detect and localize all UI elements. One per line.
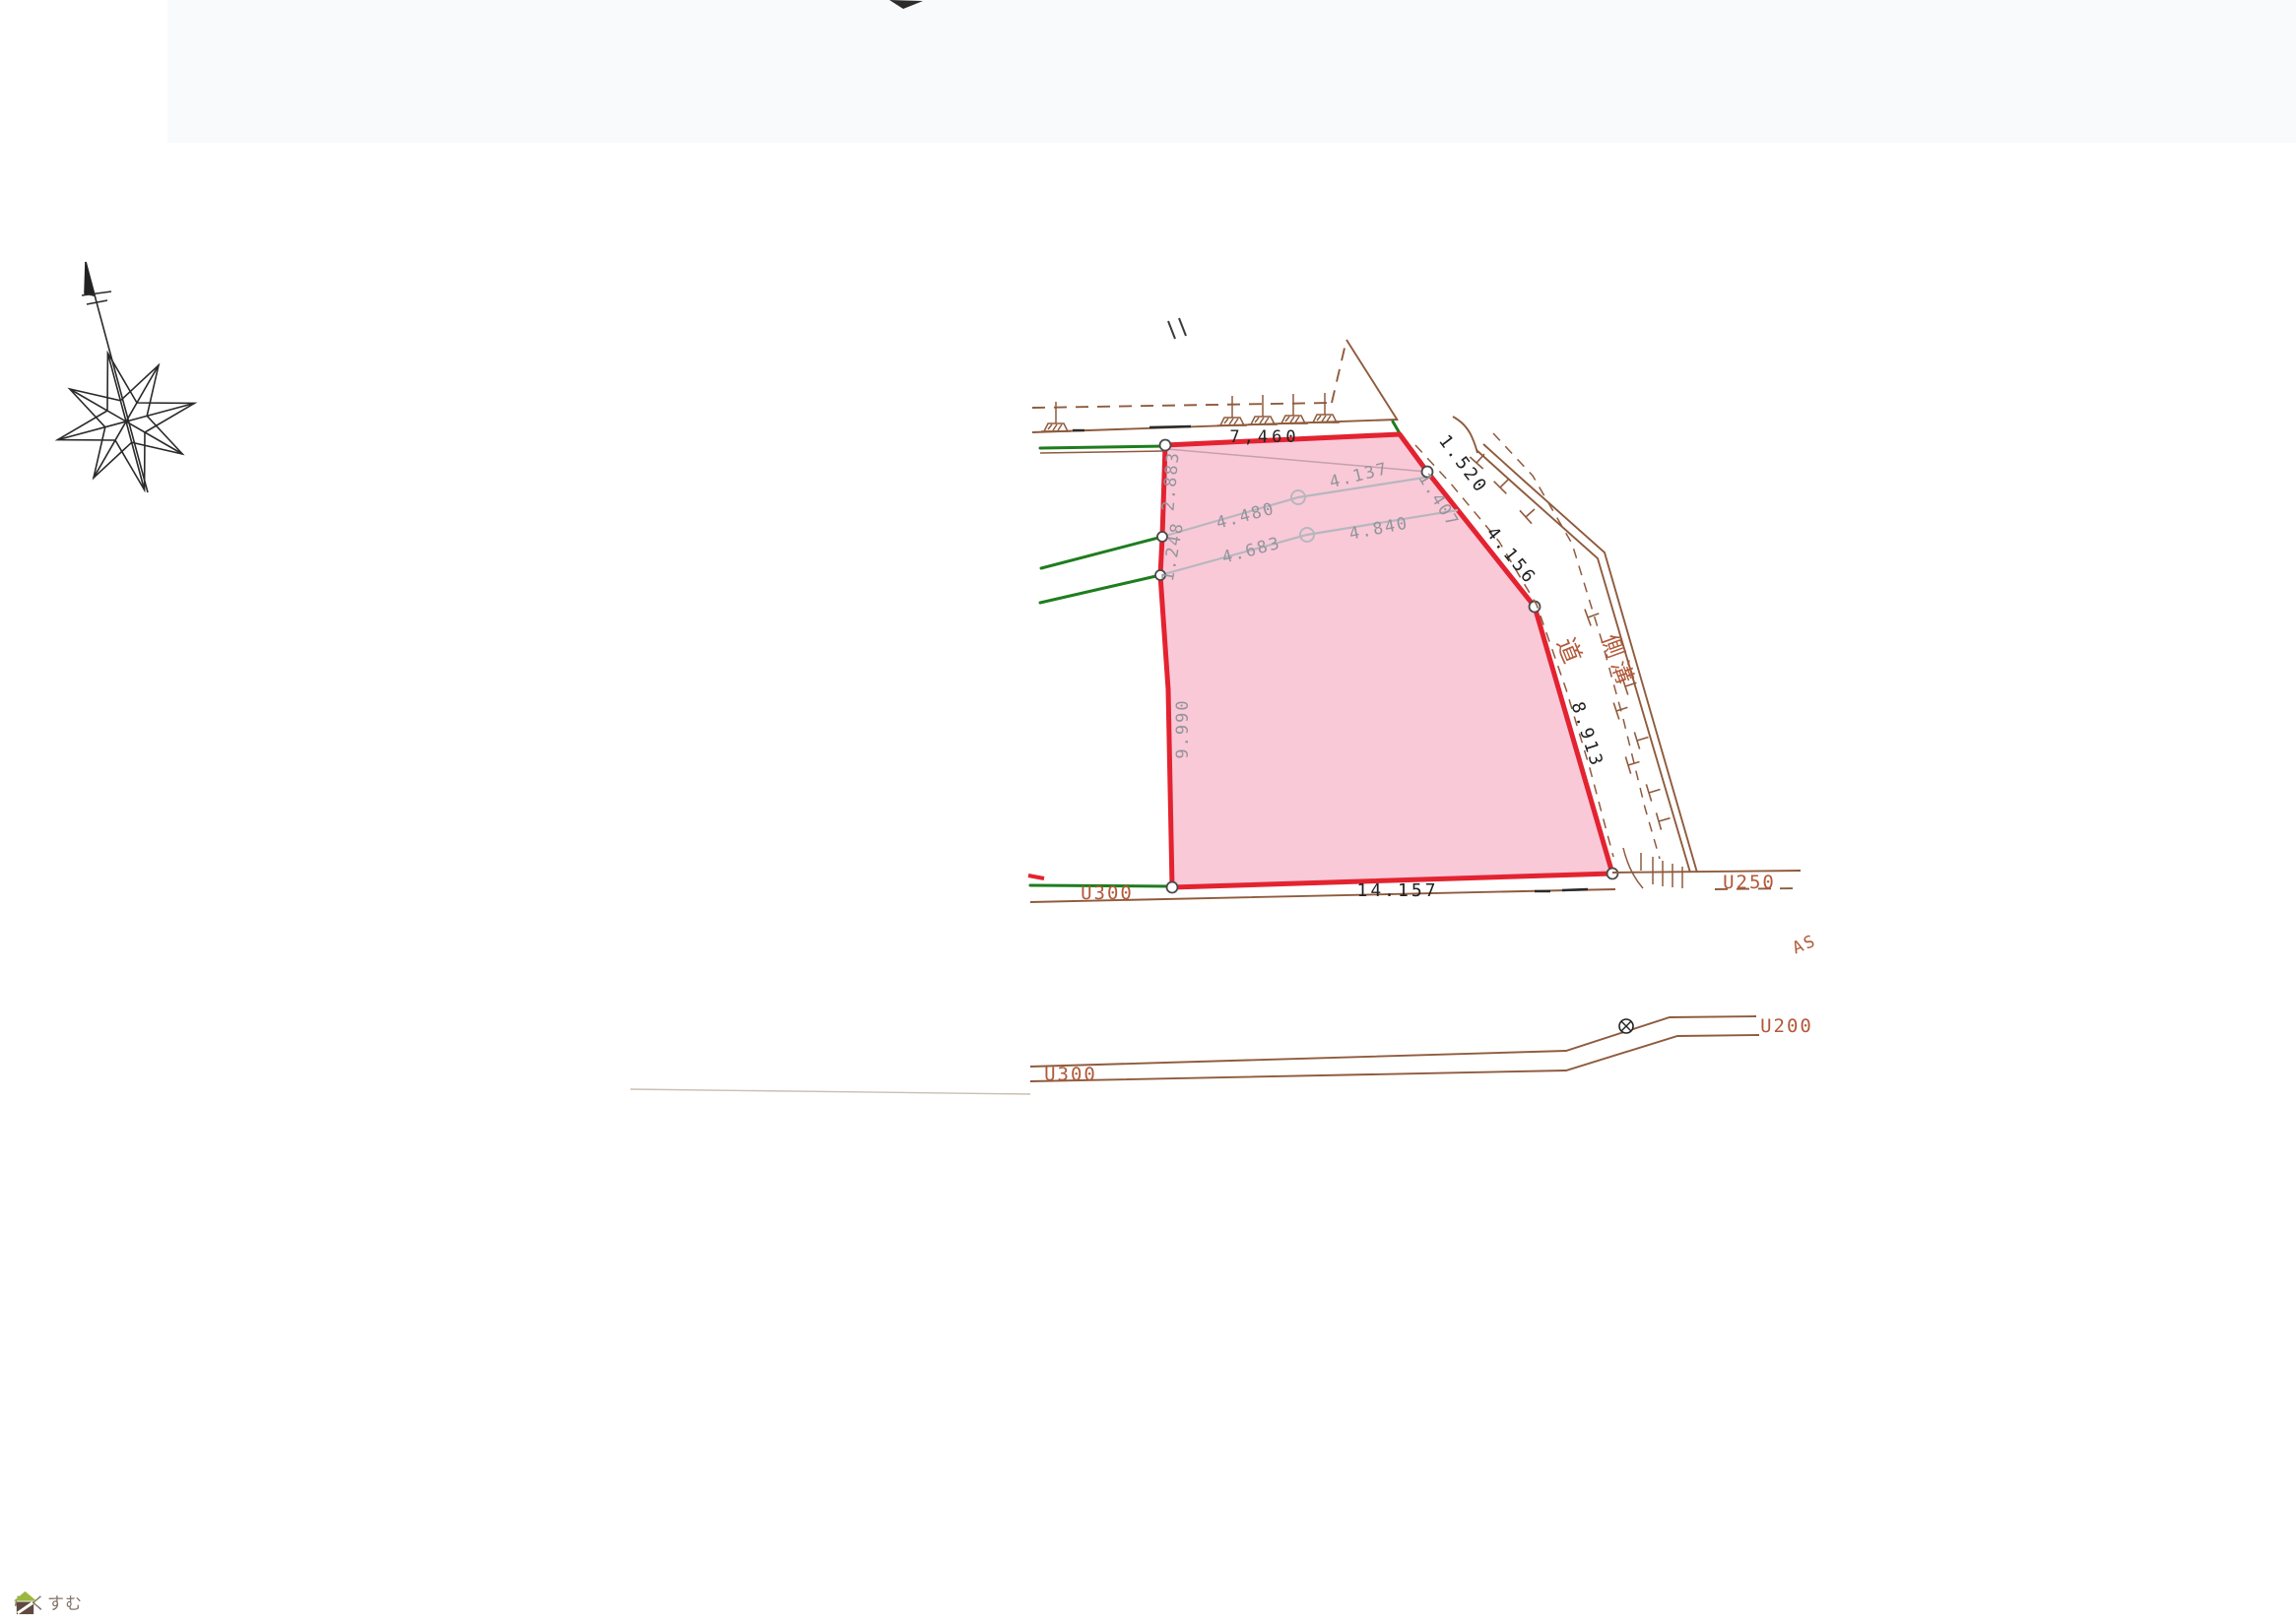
fence-icon — [1646, 781, 1663, 802]
red-stub-line — [1028, 875, 1044, 878]
vertex-marker — [1167, 882, 1178, 893]
dashed-boundary-line — [1032, 403, 1332, 408]
black-dash-4 — [1562, 889, 1588, 890]
road-kanji-label: 道 — [1551, 633, 1589, 672]
green-line-mid-1 — [1041, 537, 1162, 568]
u250-label: U250 — [1723, 872, 1776, 893]
scanned-survey-map: { "labels": { "dim_top": "7,460", "dim_t… — [0, 0, 2296, 1621]
dim-left-label: 9.990 — [1173, 698, 1193, 758]
dim-top-label: 7,460 — [1229, 427, 1299, 447]
fence-icon — [1613, 699, 1630, 720]
manhole-symbol — [1619, 1019, 1633, 1033]
lower-road-top-line — [1030, 1016, 1756, 1067]
watermark-logo-icon — [12, 1589, 38, 1616]
fence-icon — [1657, 810, 1673, 830]
u200-label: U200 — [1760, 1015, 1813, 1037]
site-plan-drawing: 7,460 1.520 4.156 8.913 14.157 9.990 2.8… — [0, 0, 2296, 1621]
vertex-marker — [1160, 440, 1171, 451]
post-icon — [1217, 396, 1247, 425]
u300-bottom-label: U300 — [1044, 1064, 1097, 1085]
brown-underline — [1040, 451, 1164, 453]
post-icon — [1310, 393, 1340, 422]
vertex-marker — [1530, 602, 1541, 613]
u300-top-label: U300 — [1081, 882, 1134, 904]
post-icon — [1279, 394, 1308, 423]
break-mark-2 — [1179, 318, 1186, 336]
green-line-mid-2 — [1040, 575, 1160, 603]
parcel-highlight — [1160, 434, 1612, 887]
green-corner-bit — [1393, 421, 1400, 433]
break-mark-1 — [1168, 321, 1175, 339]
compass-star — [58, 354, 195, 490]
green-line-top — [1040, 446, 1165, 448]
as-surface-label: AS — [1790, 932, 1819, 959]
north-boundary-lines — [1032, 318, 1398, 432]
gutter-kanji-label: 側溝 — [1596, 631, 1639, 692]
fence-icon — [1585, 605, 1602, 625]
road-inner-top-line — [1346, 340, 1398, 421]
faint-field-line — [630, 1089, 1030, 1094]
vertex-marker — [1607, 869, 1618, 879]
watermark: らくすむ — [12, 1589, 83, 1614]
compass-needle — [86, 262, 148, 492]
compass-rose — [58, 262, 195, 492]
north-edge-line — [1032, 420, 1397, 432]
hatch-curve — [1623, 848, 1643, 888]
dim-bottom-label: 14.157 — [1356, 880, 1438, 901]
fence-icon — [1625, 753, 1642, 774]
black-dash-2 — [1149, 426, 1191, 427]
lower-road-bottom-line — [1030, 1035, 1759, 1081]
post-icon — [1248, 395, 1278, 424]
driveway-hatch — [1623, 848, 1682, 888]
scan-tint-band — [167, 0, 2296, 143]
north-arrow-head — [85, 262, 94, 295]
dashed-boundary-rise — [1332, 340, 1346, 403]
